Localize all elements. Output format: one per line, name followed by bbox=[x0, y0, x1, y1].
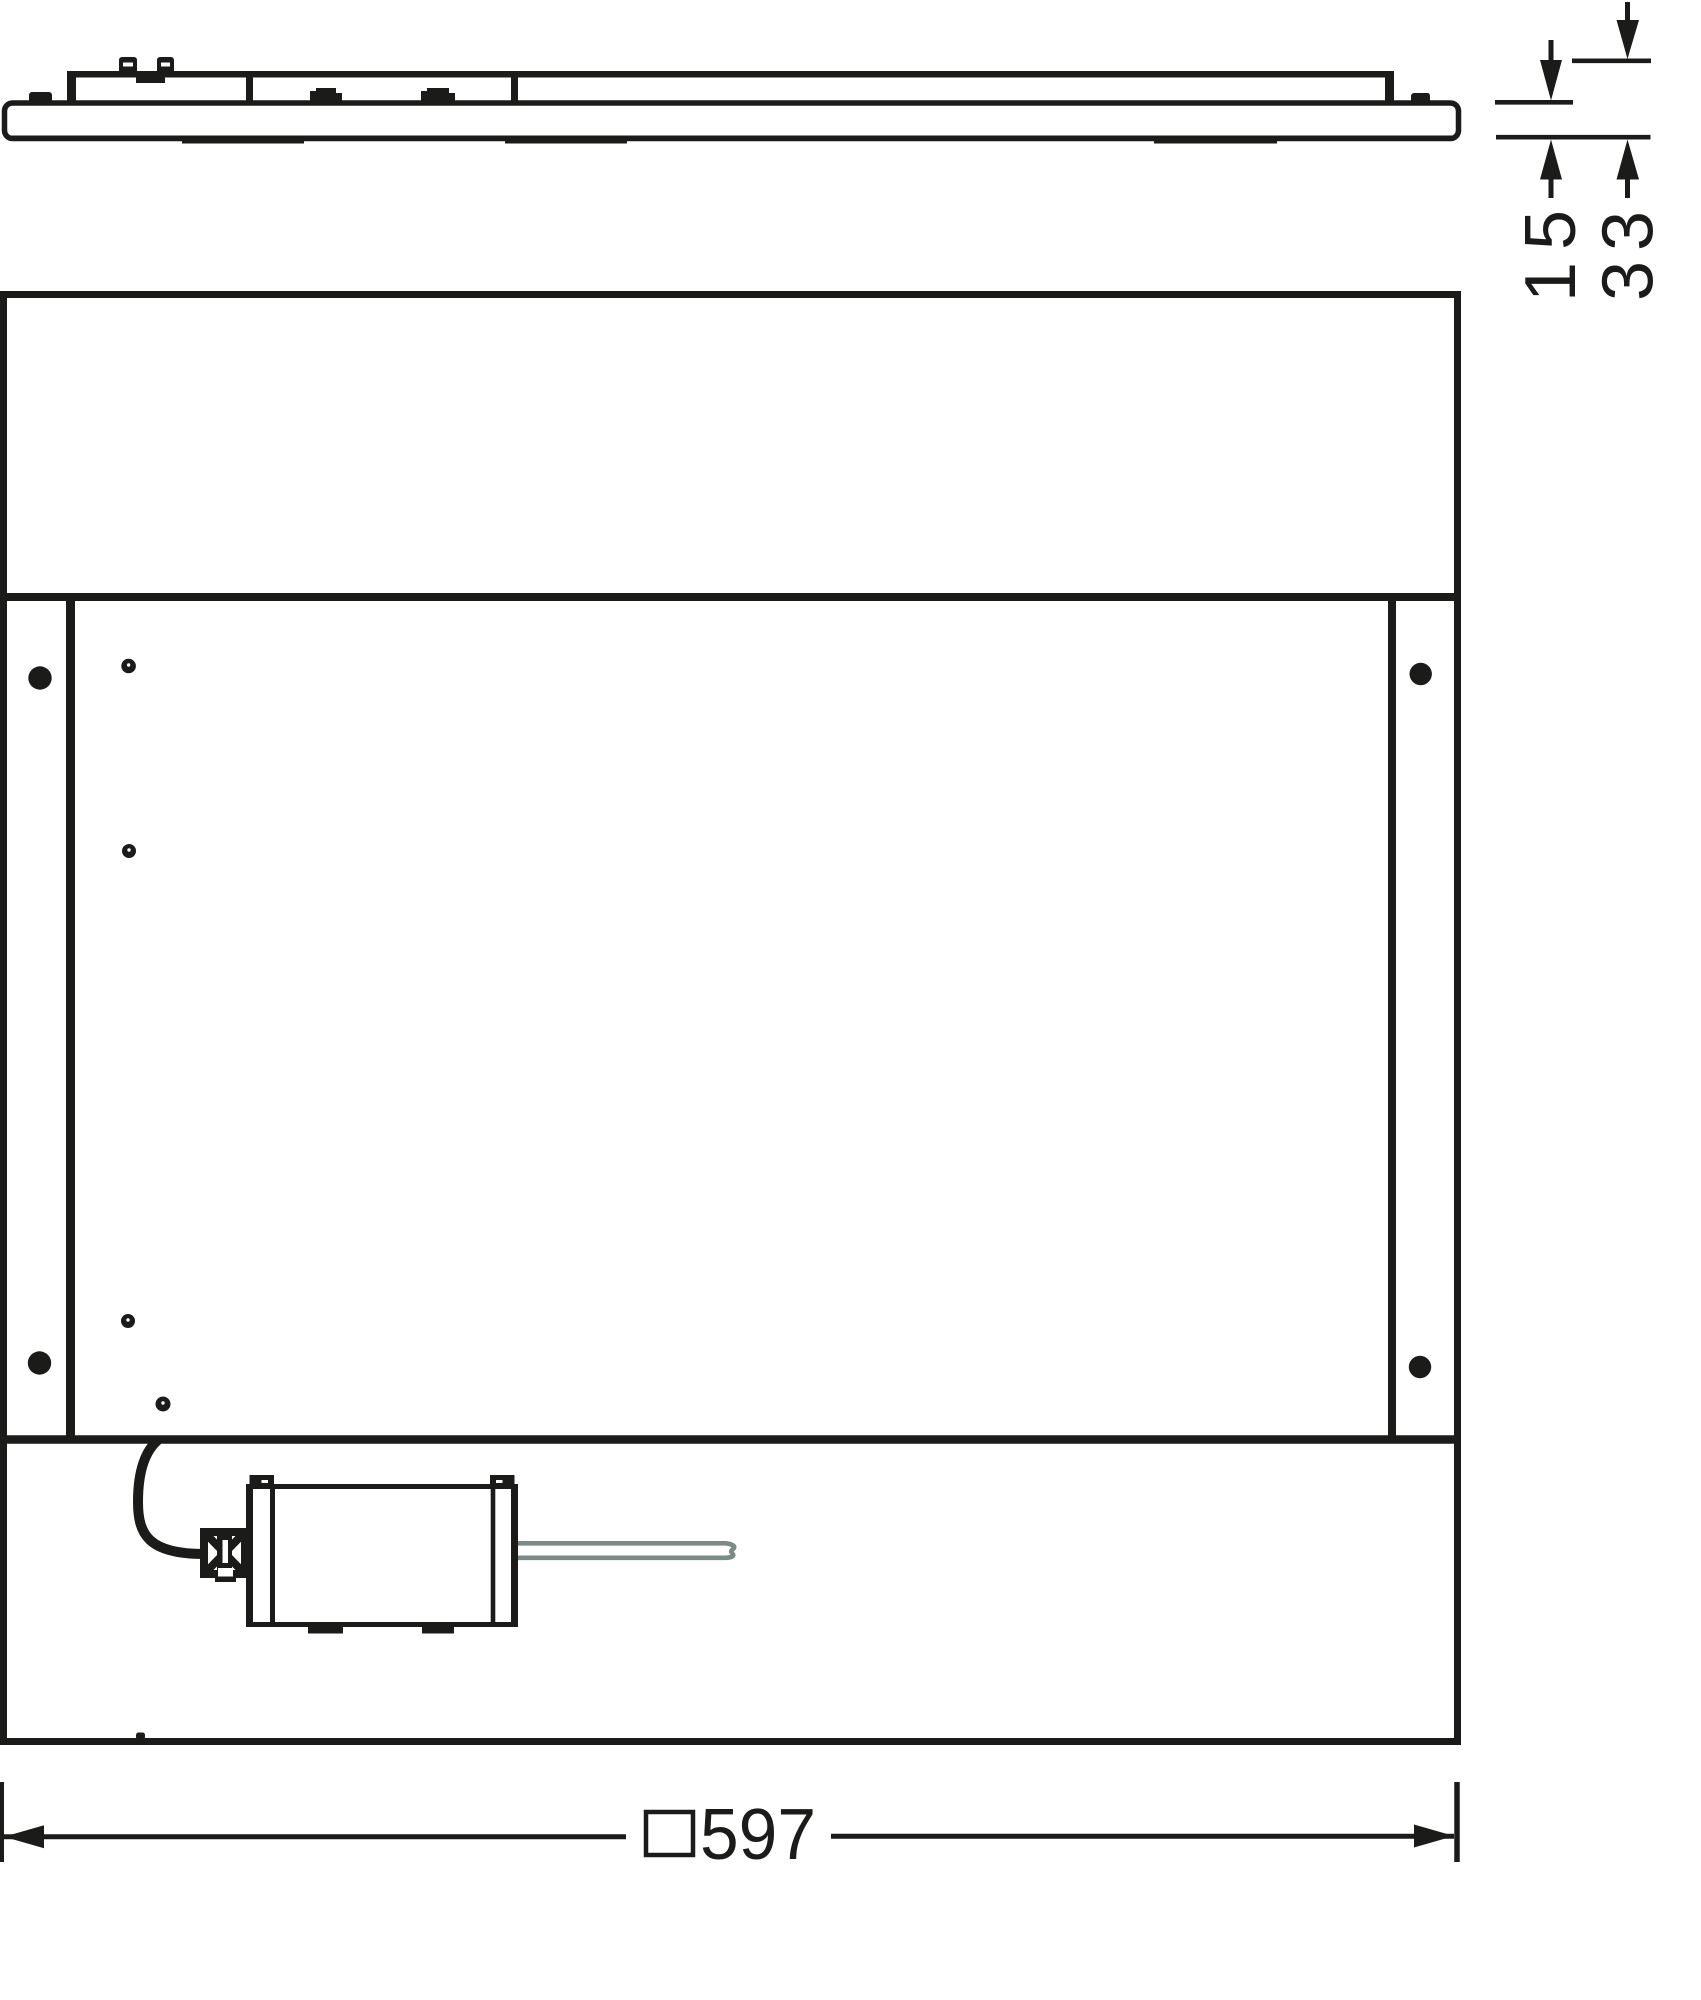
svg-text:15: 15 bbox=[1511, 210, 1591, 302]
svg-text:597: 597 bbox=[700, 1795, 816, 1875]
svg-text:33: 33 bbox=[1589, 211, 1669, 301]
